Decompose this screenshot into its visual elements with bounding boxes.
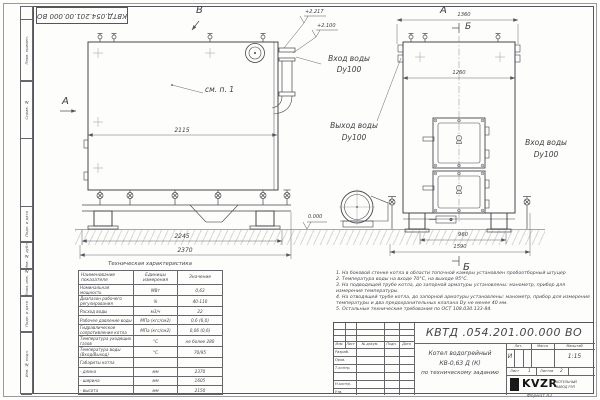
sheet-value: 1	[528, 368, 531, 373]
row-name: Расход воды	[79, 307, 134, 316]
lit-value: И	[508, 353, 513, 360]
table-row: Номинальная мощностьМВт0,63	[79, 285, 223, 296]
row-value: 0,06 (0,6)	[178, 325, 223, 336]
row-unit: МПа (кгс/см2)	[134, 325, 178, 336]
row-name: Номинальная мощность	[79, 285, 134, 296]
row-name: - высота	[79, 385, 134, 394]
title-block: КВТД .054.201.00.000 ВО Изм. Лист № доку…	[333, 322, 594, 394]
inlet-water-label-front: Вход воды Dy100	[320, 53, 378, 75]
note-item: 1. На боковой стенке котла в области топ…	[336, 271, 592, 277]
row-value: 2370	[178, 367, 223, 376]
outlet-water-label: Выход воды Dy100	[320, 120, 388, 143]
row-unit: мм	[134, 376, 178, 385]
margin-cell: Подп. и дата	[21, 296, 32, 332]
margin-label: Перв. примен.	[24, 36, 29, 65]
row-unit: мм	[134, 367, 178, 376]
row-name: Рабочее давление воды	[79, 316, 134, 325]
technical-notes: 1. На боковой стенке котла в области топ…	[336, 271, 592, 314]
row-name: Габариты котла	[79, 358, 134, 367]
dim-1590: 1590	[453, 245, 466, 251]
dim-960: 960	[458, 233, 468, 239]
row-name: Гидравлическое сопротивление котла	[79, 325, 134, 336]
col-header: Наименование показателя	[79, 271, 134, 285]
sheets-value: 2	[560, 368, 563, 373]
inlet-water-text: Вход воды	[525, 138, 567, 147]
lit-label: Лит.	[515, 344, 523, 348]
sheets-label: Листов	[540, 369, 553, 373]
elevation-2100: +2.100	[317, 24, 336, 30]
tech-table-header-row: Наименование показателя Единицы измерени…	[79, 271, 223, 285]
mass-label: Масса	[537, 344, 548, 348]
outlet-water-dn: Dy100	[342, 133, 367, 142]
format-label: Формат А3	[527, 394, 552, 399]
dim-1360: 1360	[457, 13, 470, 19]
col-header: Значение	[178, 271, 223, 285]
row-name: - ширина	[79, 376, 134, 385]
row-value: 22	[178, 307, 223, 316]
row-unit	[134, 358, 178, 367]
table-row: Диапазон рабочего регулирования%40-110	[79, 296, 223, 307]
margin-cell: Инв. № подл.	[21, 332, 32, 395]
sheet-label: Лист	[510, 369, 519, 373]
ground-hatch	[75, 230, 545, 245]
margin-cell: Взам. инв. №	[21, 269, 32, 296]
scale-value: 1:15	[568, 353, 581, 360]
row-value: не более 280	[178, 336, 223, 347]
table-row: Температура воды (Вход/Выход)°С70/95	[79, 347, 223, 358]
row-value: 0,6 (6,0)	[178, 316, 223, 325]
row-value: 40-110	[178, 296, 223, 307]
margin-label: Справ. №	[24, 100, 29, 120]
row-prov: Пров.	[335, 358, 345, 362]
margin-label: Подп. и дата	[24, 211, 29, 237]
elevation-0000: 0.000	[308, 215, 322, 221]
inlet-water-dn: Dy100	[337, 65, 362, 74]
margin-label: Взам. инв. №	[24, 269, 29, 296]
row-unit: м3/ч	[134, 307, 178, 316]
margin-strip: Перв. примен. Справ. № Подп. и дата Инв.…	[20, 6, 33, 394]
row-value: 2150	[178, 385, 223, 394]
row-name: Диапазон рабочего регулирования	[79, 296, 134, 307]
row-razrab: Разраб.	[335, 350, 349, 354]
product-name-line3: по техническому заданию	[421, 370, 499, 376]
note-item: 3. На подводящей трубе котла, до запорно…	[336, 283, 592, 294]
product-name-line1: Котел водогрейный	[429, 350, 492, 357]
kvzr-logo-mark	[510, 378, 519, 391]
doc-number: КВТД .054.201.00.000 ВО	[426, 326, 582, 339]
row-value: 1605	[178, 376, 223, 385]
row-unit: мм	[134, 385, 178, 394]
col-podp: Подп.	[386, 342, 396, 346]
tech-table: Наименование показателя Единицы измерени…	[78, 270, 223, 395]
row-unit: МПа (кгс/см2)	[134, 316, 178, 325]
row-name: - длина	[79, 367, 134, 376]
col-izm: Изм.	[336, 342, 344, 346]
dim-2370: 2370	[177, 248, 192, 255]
row-tkontr: Т.контр.	[335, 366, 351, 370]
row-unit: °С	[134, 347, 178, 358]
logo-subtext-1: КОТЕЛЬНЫЙ	[556, 380, 577, 384]
view-letter-a-front: А	[62, 96, 69, 107]
inlet-water-label-side: Вход воды Dy100	[514, 137, 578, 160]
margin-label: Инв. № подл.	[24, 350, 29, 377]
inlet-water-dn: Dy100	[534, 150, 559, 159]
note-item: 4. На отводящей трубе котла, до запорной…	[336, 295, 592, 306]
outlet-water-text: Выход воды	[330, 121, 378, 130]
section-letter-b-top: Б	[465, 23, 471, 33]
elevation-2217: +2.217	[305, 10, 324, 16]
view-letter-b: В	[196, 5, 203, 16]
table-row: - высотамм2150	[79, 385, 223, 394]
row-nkontr: Н.контр.	[335, 382, 351, 386]
margin-cell: Инв. № дубл.	[21, 242, 32, 269]
table-row: Гидравлическое сопротивление котлаМПа (к…	[79, 325, 223, 336]
row-name: Температура уходящих газов	[79, 336, 134, 347]
row-name: Температура воды (Вход/Выход)	[79, 347, 134, 358]
col-ndokum: № докум.	[362, 342, 379, 346]
row-utv: Утв.	[335, 390, 343, 394]
table-row: - длинамм2370	[79, 367, 223, 376]
table-row: - ширинамм1605	[79, 376, 223, 385]
row-value	[178, 358, 223, 367]
drawing-sheet: Перв. примен. Справ. № Подп. и дата Инв.…	[0, 0, 600, 400]
col-data: Дата	[402, 342, 411, 346]
row-unit: МВт	[134, 285, 178, 296]
scale-label: Масштаб	[566, 344, 582, 348]
top-doc-number: КВТД.054.201.00.000 ВО	[37, 12, 127, 20]
margin-label: Подп. и дата	[24, 301, 29, 327]
margin-label: Инв. № дубл.	[24, 242, 29, 269]
row-value: 70/95	[178, 347, 223, 358]
row-value: 0,63	[178, 285, 223, 296]
margin-cell: Справ. №	[21, 81, 32, 139]
logo-subtext-2: ЗАВОД РЭП	[556, 385, 575, 389]
dim-2245: 2245	[174, 234, 189, 241]
product-name-line2: КВ-0,63 Д (К)	[439, 360, 480, 367]
tech-table-title: Техническая характеристика	[108, 261, 192, 267]
row-unit: °С	[134, 336, 178, 347]
table-row: Температура уходящих газов°Сне более 280	[79, 336, 223, 347]
kvzr-logo-text: KVZR	[522, 377, 557, 390]
table-row: Расход водым3/ч22	[79, 307, 223, 316]
dim-2115: 2115	[174, 128, 189, 135]
callout-see-note-1: см. п. 1	[205, 86, 234, 94]
inlet-water-text: Вход воды	[328, 54, 370, 63]
col-header: Единицы измерения	[134, 271, 178, 285]
margin-cell: Подп. и дата	[21, 206, 32, 242]
top-doc-number-stamp: КВТД.054.201.00.000 ВО	[36, 7, 128, 24]
table-row: Габариты котла	[79, 358, 223, 367]
col-list: Лист	[346, 342, 355, 346]
margin-cell: Перв. примен.	[21, 19, 32, 81]
note-item: 5. Остальные технические требования по О…	[336, 307, 592, 313]
view-letter-a-side: А	[440, 5, 447, 16]
table-row: Рабочее давление водыМПа (кгс/см2)0,6 (6…	[79, 316, 223, 325]
dim-1260: 1260	[452, 71, 465, 77]
row-unit: %	[134, 296, 178, 307]
